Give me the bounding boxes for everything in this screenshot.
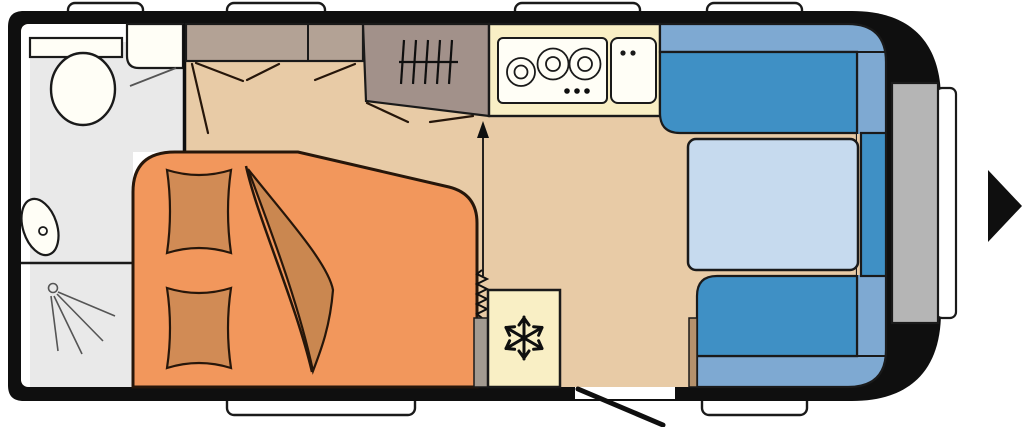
kitchen-sink <box>611 38 656 103</box>
kitchen <box>489 24 660 116</box>
entry-door <box>575 387 675 425</box>
side-shelf <box>689 318 697 387</box>
sofa-seat-bottom <box>697 276 857 356</box>
direction-arrow-icon <box>988 170 1022 242</box>
overhead-locker <box>186 24 363 61</box>
heater-base <box>474 318 488 387</box>
dinette <box>660 24 886 387</box>
caravan-floorplan <box>0 0 1024 427</box>
toilet-bowl <box>51 53 115 125</box>
sofa-seat-top <box>660 52 857 133</box>
hob-knobs <box>564 88 590 94</box>
pillow-top <box>167 170 231 253</box>
front-bench-seat <box>861 133 886 276</box>
refrigerator <box>488 290 560 387</box>
dinette-table <box>688 139 858 270</box>
floorplan-svg <box>0 0 1024 427</box>
front-locker-panel <box>892 83 938 323</box>
pillow-bottom <box>167 288 231 368</box>
bathroom-cabinet <box>127 24 183 68</box>
